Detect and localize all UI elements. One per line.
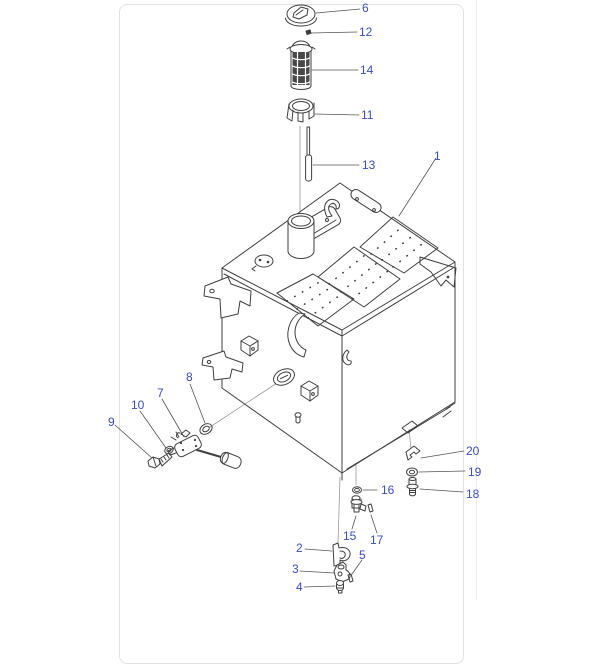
dipstick-part bbox=[306, 127, 312, 181]
callout-19[interactable]: 19 bbox=[468, 466, 481, 478]
plug-part-4 bbox=[337, 581, 344, 594]
callout-12[interactable]: 12 bbox=[359, 26, 372, 38]
callout-8[interactable]: 8 bbox=[186, 371, 193, 383]
leader-lines bbox=[115, 9, 465, 587]
callout-20[interactable]: 20 bbox=[466, 445, 479, 457]
callout-13[interactable]: 13 bbox=[362, 159, 375, 171]
callout-1[interactable]: 1 bbox=[434, 150, 441, 162]
callout-5[interactable]: 5 bbox=[359, 549, 366, 561]
filler-cap-part bbox=[286, 5, 317, 26]
exploded-diagram bbox=[0, 0, 600, 600]
strainer-part bbox=[287, 41, 315, 90]
oring-part-8 bbox=[198, 421, 214, 436]
callout-14[interactable]: 14 bbox=[360, 64, 373, 76]
callout-9[interactable]: 9 bbox=[108, 416, 115, 428]
oring-part-16 bbox=[353, 487, 362, 493]
washer-part-19 bbox=[407, 468, 418, 476]
callout-15[interactable]: 15 bbox=[343, 530, 356, 542]
callout-7[interactable]: 7 bbox=[157, 387, 164, 399]
pin-part-5 bbox=[348, 574, 353, 582]
callout-4[interactable]: 4 bbox=[296, 581, 303, 593]
assembly-lines bbox=[210, 126, 411, 543]
collar-part bbox=[287, 99, 314, 122]
fuel-tank-body bbox=[202, 183, 456, 480]
clip-part-20 bbox=[406, 446, 420, 460]
callout-3[interactable]: 3 bbox=[292, 563, 299, 575]
bolt-part-9 bbox=[148, 453, 172, 468]
callout-10[interactable]: 10 bbox=[131, 399, 144, 411]
valve-part-15 bbox=[351, 496, 366, 512]
square-boss-lower bbox=[301, 381, 318, 401]
callout-6[interactable]: 6 bbox=[362, 2, 369, 14]
callout-17[interactable]: 17 bbox=[370, 534, 383, 546]
sender-unit-part bbox=[168, 430, 243, 470]
callout-11[interactable]: 11 bbox=[361, 109, 373, 121]
sender-port bbox=[271, 366, 297, 389]
callout-18[interactable]: 18 bbox=[466, 488, 479, 500]
pin-part-17 bbox=[368, 504, 373, 512]
callout-16[interactable]: 16 bbox=[381, 484, 394, 496]
callout-2[interactable]: 2 bbox=[296, 542, 303, 554]
pin-part-12 bbox=[306, 30, 311, 35]
square-boss-upper bbox=[241, 336, 258, 356]
bolt-part-18 bbox=[407, 478, 418, 496]
